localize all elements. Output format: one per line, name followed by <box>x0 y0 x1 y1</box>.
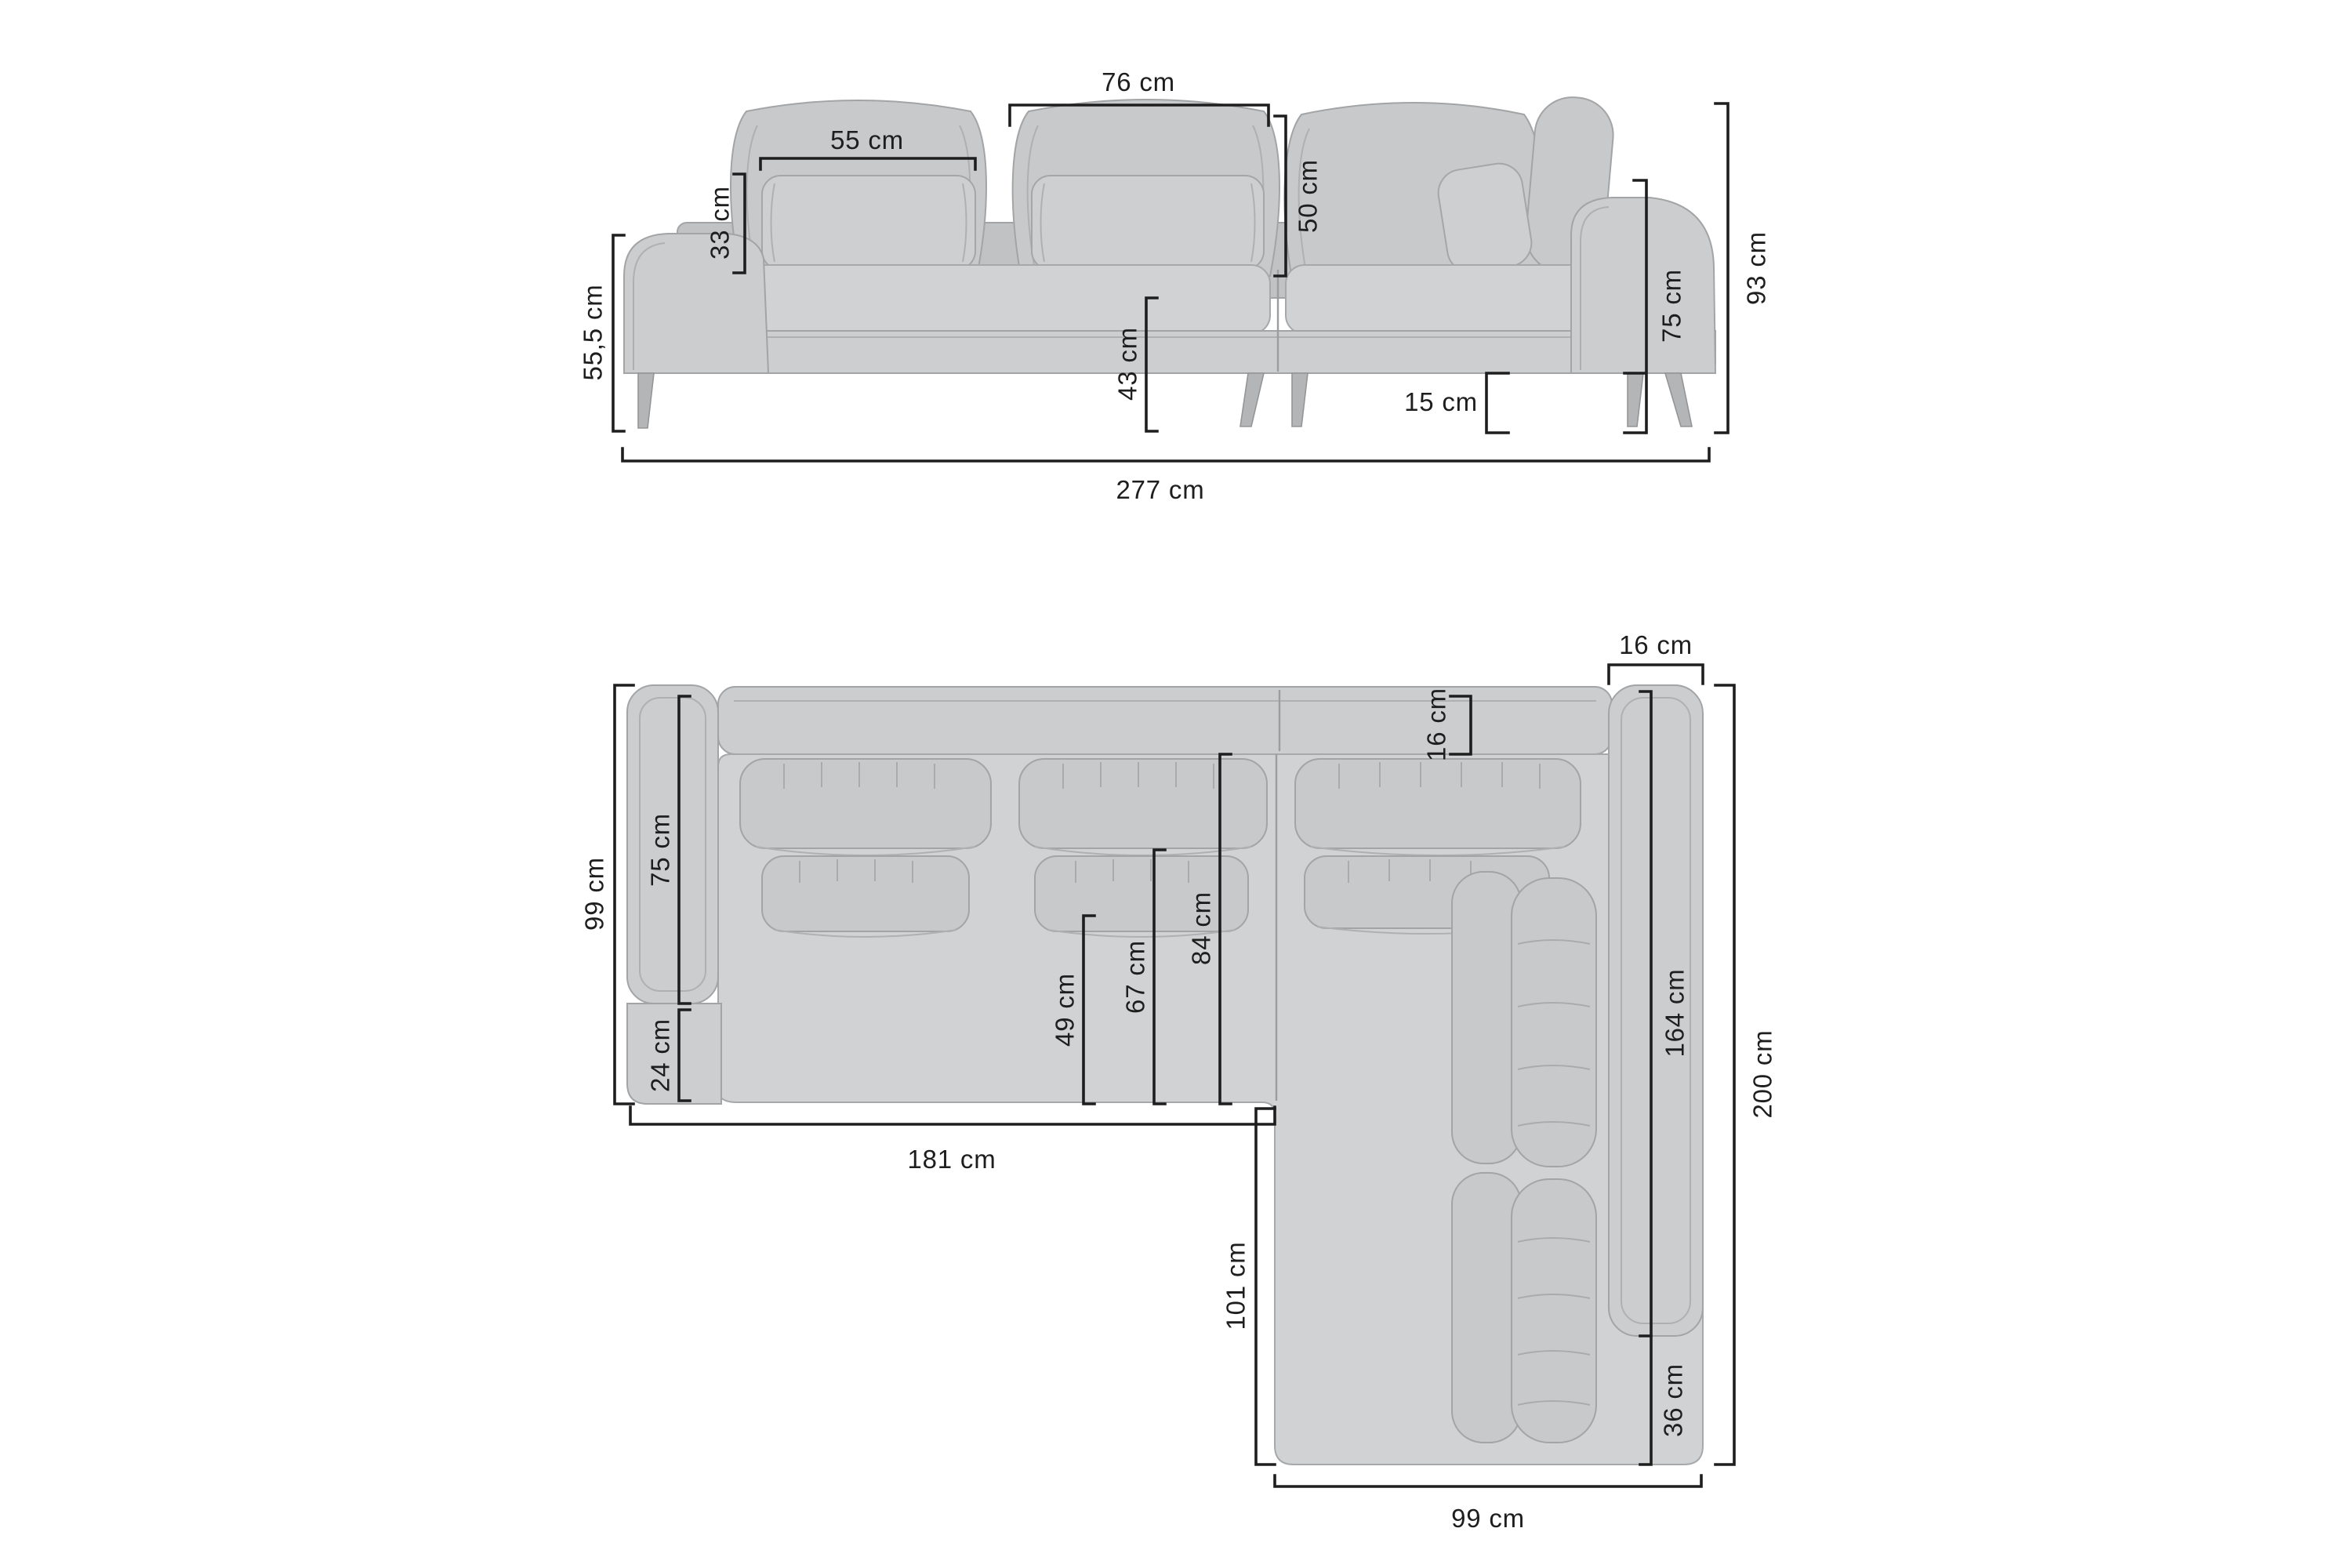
leg <box>638 373 654 428</box>
leg <box>1665 373 1692 426</box>
dim-label-chaise-side-length: 101 cm <box>1221 1241 1250 1330</box>
plan-cushion-left <box>740 759 991 848</box>
dim-armrest-width: 16 cm <box>1609 630 1703 684</box>
dim-chaise-side-length: 101 cm <box>1221 1109 1275 1465</box>
dim-label-leg-height: 15 cm <box>1404 387 1478 416</box>
dim-total-depth: 200 cm <box>1715 685 1777 1465</box>
left-armrest <box>624 234 768 373</box>
dim-label-left-side-depth: 99 cm <box>580 857 609 931</box>
dim-label-total-height: 93 cm <box>1742 231 1771 305</box>
dim-label-total-depth: 200 cm <box>1748 1029 1777 1118</box>
dim-label-seat-depth-full: 84 cm <box>1187 891 1216 965</box>
chaise-bolster-cushions <box>1452 872 1596 1443</box>
bolster <box>1452 872 1521 1163</box>
dim-label-front-ledge-depth: 24 cm <box>646 1018 675 1092</box>
dim-label-backrest-height: 75 cm <box>1657 269 1686 343</box>
dim-label-left-armrest-length: 75 cm <box>646 813 675 887</box>
plan-cushion-middle <box>1019 759 1267 848</box>
dim-total-width: 277 cm <box>622 448 1709 504</box>
dim-label-seat-depth-to-lumbar: 49 cm <box>1051 973 1080 1047</box>
dim-main-body-width: 181 cm <box>630 1107 1275 1174</box>
dim-label-corner-section: 36 cm <box>1659 1363 1688 1437</box>
dim-label-armrest-height: 55,5 cm <box>579 285 608 381</box>
lumbar-pillow-left <box>762 176 975 270</box>
dim-label-back-cushion-width: 76 cm <box>1102 67 1175 96</box>
dim-label-pillow-height: 33 cm <box>706 186 735 260</box>
dim-label-back-cushion-height: 50 cm <box>1294 159 1323 233</box>
plan-lumbar-middle <box>1035 856 1248 931</box>
lumbar-pillow-middle <box>1032 176 1264 270</box>
bolster <box>1512 878 1596 1167</box>
plan-lumbar-left <box>762 856 969 931</box>
dim-label-total-width: 277 cm <box>1116 475 1204 504</box>
dim-total-height: 93 cm <box>1715 103 1771 433</box>
plan-cushion-right <box>1295 759 1581 848</box>
dim-left-side-depth: 99 cm <box>580 685 633 1104</box>
dim-label-right-armrest-length: 164 cm <box>1661 968 1690 1057</box>
dim-label-armrest-width: 16 cm <box>1619 630 1693 659</box>
front-elevation-view: 76 cm 55 cm 33 cm 50 cm 55,5 cm 43 cm 15… <box>579 67 1771 504</box>
leg <box>1628 373 1643 426</box>
leg <box>1292 373 1308 426</box>
dim-armrest-height: 55,5 cm <box>579 235 624 431</box>
lumbar-pillow-corner <box>1435 160 1534 275</box>
sofa-legs <box>638 373 1692 428</box>
dim-label-seat-depth-to-cushion: 67 cm <box>1121 940 1150 1014</box>
dim-label-seat-height: 43 cm <box>1113 327 1142 401</box>
top-plan-view: 16 cm 16 cm 99 cm 75 cm 24 cm 49 cm 67 c… <box>580 630 1777 1533</box>
dim-label-backrest-depth: 16 cm <box>1422 688 1451 761</box>
dim-label-chaise-width: 99 cm <box>1451 1504 1525 1533</box>
bolster <box>1452 1173 1521 1443</box>
backrest-strip <box>718 687 1612 754</box>
leg <box>1240 373 1264 426</box>
dim-leg-height: 15 cm <box>1404 373 1645 433</box>
sofa-dimension-diagram: 76 cm 55 cm 33 cm 50 cm 55,5 cm 43 cm 15… <box>0 0 2352 1568</box>
dim-chaise-width: 99 cm <box>1275 1475 1701 1533</box>
right-armrest <box>1571 198 1715 373</box>
dim-label-pillow-width: 55 cm <box>830 125 904 154</box>
dim-label-main-body-width: 181 cm <box>907 1145 996 1174</box>
